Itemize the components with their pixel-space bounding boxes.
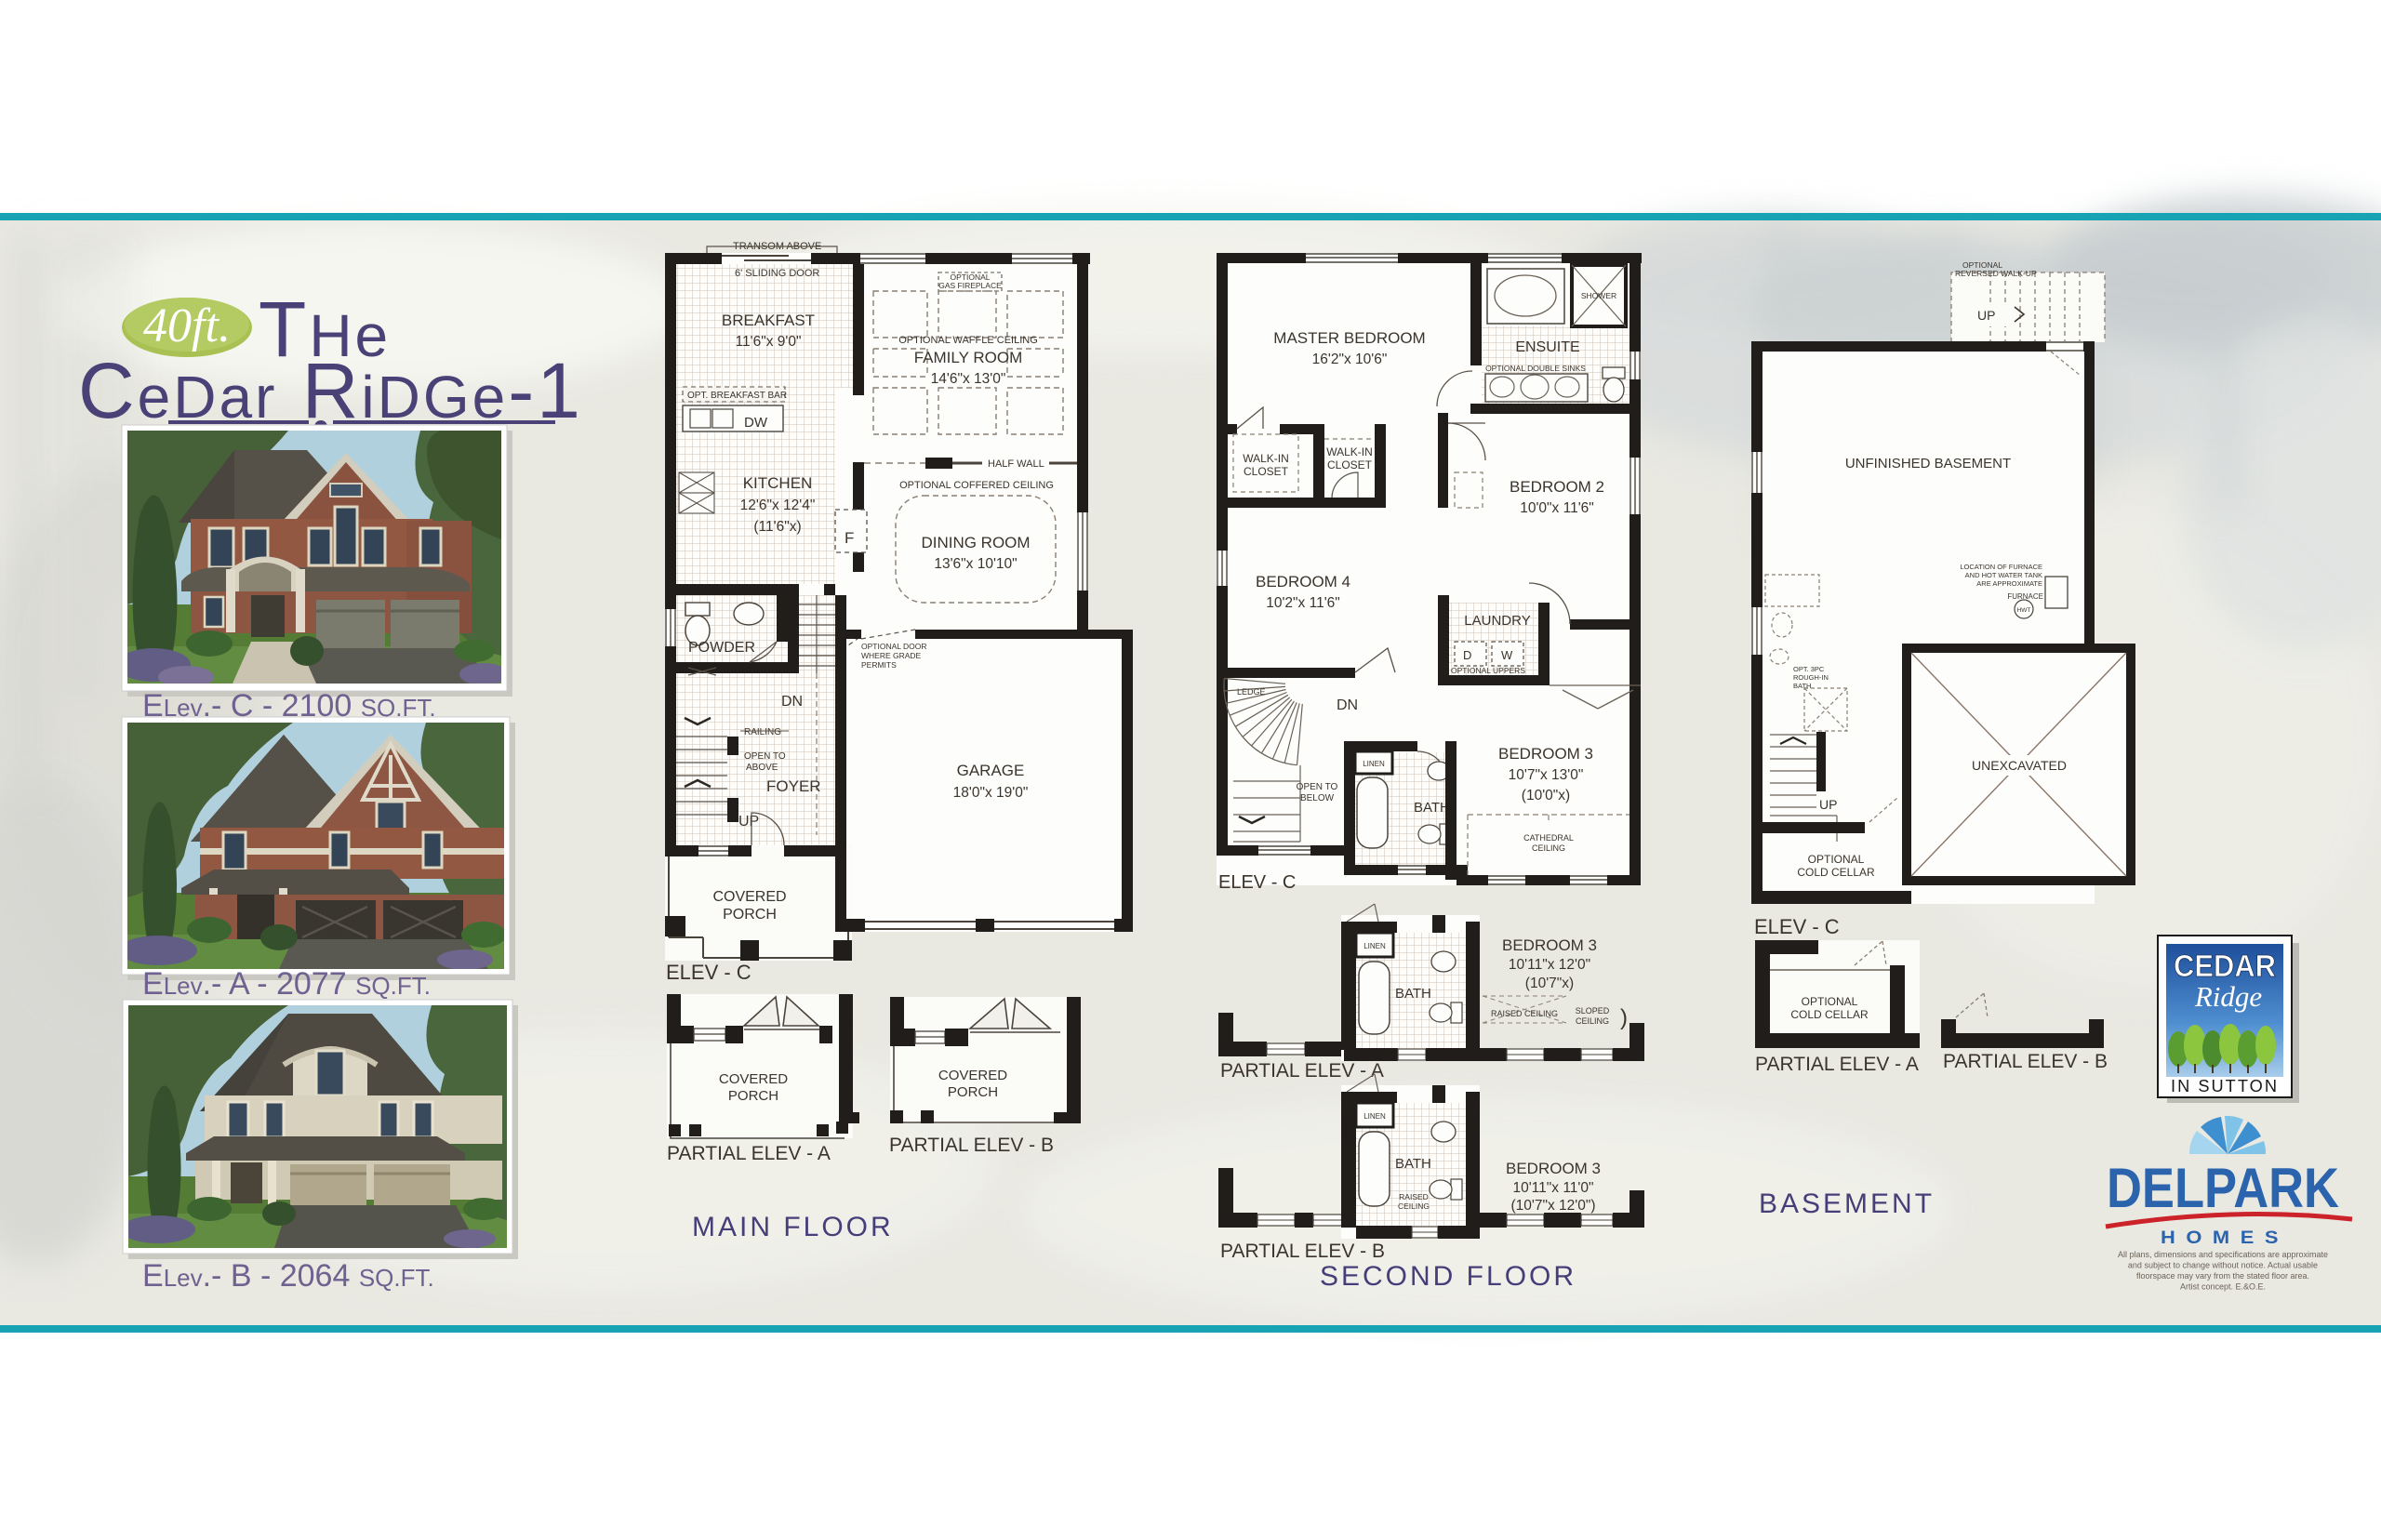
svg-text:PARTIAL ELEV - B: PARTIAL ELEV - B: [1220, 1241, 1385, 1262]
svg-text:LEDGE: LEDGE: [1237, 687, 1266, 697]
svg-text:RAISED CEILING: RAISED CEILING: [1491, 1009, 1558, 1018]
svg-text:SLOPED: SLOPED: [1576, 1006, 1610, 1016]
svg-text:18'0"x 19'0": 18'0"x 19'0": [953, 785, 1029, 801]
svg-text:ELev.- B - 2064 SQ.FT.: ELev.- B - 2064 SQ.FT.: [142, 1258, 434, 1294]
svg-text:PARTIAL ELEV - A: PARTIAL ELEV - A: [1220, 1060, 1384, 1082]
svg-text:Artist concept. E.&O.E.: Artist concept. E.&O.E.: [2180, 1282, 2266, 1292]
svg-text:DW: DW: [744, 415, 768, 431]
svg-text:14'6"x 13'0": 14'6"x 13'0": [931, 371, 1006, 387]
svg-text:10'11"x 11'0": 10'11"x 11'0": [1512, 1180, 1593, 1196]
svg-text:MASTER BEDROOM: MASTER BEDROOM: [1273, 329, 1425, 347]
svg-text:KITCHEN: KITCHEN: [743, 474, 813, 492]
svg-text:HALF WALL: HALF WALL: [988, 458, 1044, 470]
svg-text:10'7"x 13'0": 10'7"x 13'0": [1509, 767, 1584, 783]
svg-text:PORCH: PORCH: [948, 1084, 998, 1100]
svg-text:UP: UP: [738, 814, 759, 830]
svg-text:16'2"x 10'6": 16'2"x 10'6": [1312, 352, 1388, 367]
svg-text:OPTIONAL COFFERED CEILING: OPTIONAL COFFERED CEILING: [899, 480, 1054, 491]
svg-text:OPT. BREAKFAST BAR: OPT. BREAKFAST BAR: [687, 391, 787, 401]
svg-text:FOYER: FOYER: [766, 777, 821, 795]
svg-text:LINEN: LINEN: [1363, 942, 1386, 950]
svg-text:BEDROOM 2: BEDROOM 2: [1510, 478, 1604, 496]
svg-text:CEILING: CEILING: [1398, 1201, 1430, 1211]
svg-text:DELPARK: DELPARK: [2107, 1157, 2339, 1219]
svg-text:6' SLIDING DOOR: 6' SLIDING DOOR: [735, 268, 819, 279]
svg-text:HOMES: HOMES: [2161, 1228, 2289, 1248]
svg-text:(10'7"x 12'0"): (10'7"x 12'0"): [1510, 1198, 1595, 1214]
svg-text:WALK-IN: WALK-IN: [1243, 452, 1289, 465]
svg-text:BATH: BATH: [1395, 986, 1431, 1002]
svg-text:ELEV - C: ELEV - C: [1218, 872, 1296, 893]
svg-text:PARTIAL ELEV - A: PARTIAL ELEV - A: [667, 1143, 831, 1164]
svg-text:COLD CELLAR: COLD CELLAR: [1790, 1008, 1869, 1021]
svg-text:OPEN TO: OPEN TO: [744, 751, 786, 762]
svg-text:LOCATION OF FURNACE: LOCATION OF FURNACE: [1960, 563, 2042, 571]
svg-text:40ft.: 40ft.: [143, 299, 231, 352]
svg-text:UP: UP: [1819, 797, 1837, 812]
svg-text:COVERED: COVERED: [712, 889, 786, 905]
svg-text:BEDROOM 3: BEDROOM 3: [1498, 745, 1593, 763]
svg-text:Ridge: Ridge: [2194, 980, 2263, 1013]
svg-text:12'6"x 12'4": 12'6"x 12'4": [740, 498, 816, 513]
svg-text:D: D: [1463, 648, 1471, 662]
svg-text:PARTIAL ELEV - A: PARTIAL ELEV - A: [1755, 1054, 1919, 1075]
svg-text:SECOND FLOOR: SECOND FLOOR: [1320, 1261, 1576, 1292]
svg-text:ABOVE: ABOVE: [746, 763, 778, 773]
svg-text:CATHEDRAL: CATHEDRAL: [1523, 833, 1574, 843]
svg-text:and subject to change without: and subject to change without notice. Ac…: [2128, 1261, 2318, 1270]
svg-text:ENSUITE: ENSUITE: [1515, 339, 1579, 355]
svg-text:UP: UP: [1977, 308, 1995, 323]
svg-text:BATH: BATH: [1793, 682, 1811, 690]
svg-text:RAISED: RAISED: [1399, 1192, 1429, 1201]
svg-text:LINEN: LINEN: [1363, 760, 1385, 768]
svg-text:OPTIONAL DOUBLE SINKS: OPTIONAL DOUBLE SINKS: [1485, 364, 1586, 373]
svg-text:(10'7"x): (10'7"x): [1525, 976, 1574, 991]
svg-text:COLD CELLAR: COLD CELLAR: [1797, 866, 1875, 879]
svg-text:(10'0"x): (10'0"x): [1522, 788, 1570, 803]
svg-text:HWT: HWT: [2017, 607, 2031, 614]
svg-text:floorspace may vary from the s: floorspace may vary from the stated floo…: [2136, 1271, 2309, 1281]
svg-text:OPTIONAL DOOR: OPTIONAL DOOR: [861, 642, 927, 651]
svg-text:BEDROOM 3: BEDROOM 3: [1506, 1160, 1601, 1177]
svg-text:10'0"x 11'6": 10'0"x 11'6": [1520, 500, 1594, 516]
svg-text:OPEN TO: OPEN TO: [1297, 782, 1338, 792]
svg-text:ARE APPROXIMATE: ARE APPROXIMATE: [1976, 579, 2042, 588]
svg-text:CEILING: CEILING: [1576, 1016, 1609, 1026]
svg-text:BATH: BATH: [1414, 800, 1450, 816]
svg-text:DINING ROOM: DINING ROOM: [921, 534, 1030, 551]
svg-text:COVERED: COVERED: [938, 1068, 1007, 1083]
svg-text:OPTIONAL UPPERS: OPTIONAL UPPERS: [1451, 666, 1525, 675]
svg-text:ELEV - C: ELEV - C: [1754, 915, 1840, 938]
svg-text:DN: DN: [1337, 697, 1358, 713]
svg-text:WHERE GRADE: WHERE GRADE: [861, 651, 922, 660]
svg-text:OPTIONAL WAFFLE CEILING: OPTIONAL WAFFLE CEILING: [898, 335, 1038, 346]
svg-text:BREAKFAST: BREAKFAST: [722, 312, 815, 329]
svg-text:DN: DN: [781, 694, 803, 710]
svg-text:10'11"x 12'0": 10'11"x 12'0": [1509, 957, 1590, 973]
svg-text:BEDROOM 3: BEDROOM 3: [1502, 936, 1597, 954]
svg-text:MAIN FLOOR: MAIN FLOOR: [692, 1212, 894, 1242]
svg-text:AND HOT WATER TANK: AND HOT WATER TANK: [1965, 571, 2042, 579]
svg-text:PARTIAL ELEV - B: PARTIAL ELEV - B: [889, 1135, 1054, 1156]
svg-text:CEILING: CEILING: [1532, 843, 1565, 853]
svg-text:UNFINISHED BASEMENT: UNFINISHED BASEMENT: [1845, 456, 2011, 471]
svg-text:CEDAR: CEDAR: [2174, 949, 2276, 983]
svg-text:UNEXCAVATED: UNEXCAVATED: [1972, 758, 2067, 773]
svg-text:BELOW: BELOW: [1300, 793, 1335, 803]
svg-text:13'6"x 10'10": 13'6"x 10'10": [934, 556, 1017, 572]
svg-text:POWDER: POWDER: [688, 640, 755, 656]
svg-text:REVERSED WALK-UP: REVERSED WALK-UP: [1955, 269, 2037, 278]
svg-text:PARTIAL ELEV - B: PARTIAL ELEV - B: [1943, 1051, 2108, 1072]
svg-text:10'2"x 11'6": 10'2"x 11'6": [1266, 595, 1340, 611]
svg-text:11'6"x 9'0": 11'6"x 9'0": [736, 334, 802, 350]
svg-text:FAMILY ROOM: FAMILY ROOM: [914, 349, 1023, 366]
svg-text:PORCH: PORCH: [723, 907, 777, 923]
svg-text:BATH: BATH: [1395, 1156, 1431, 1172]
svg-text:LAUNDRY: LAUNDRY: [1464, 613, 1530, 629]
svg-text:F: F: [845, 529, 854, 547]
svg-text:WALK-IN: WALK-IN: [1326, 445, 1373, 458]
svg-text:ROUGH-IN: ROUGH-IN: [1793, 673, 1829, 682]
svg-text:BEDROOM 4: BEDROOM 4: [1256, 573, 1350, 591]
svg-text:): ): [1620, 1005, 1628, 1030]
svg-text:IN SUTTON: IN SUTTON: [2171, 1077, 2279, 1095]
svg-text:GARAGE: GARAGE: [957, 762, 1025, 779]
svg-text:LINEN: LINEN: [1363, 1112, 1386, 1121]
svg-text:OPTIONAL: OPTIONAL: [1802, 995, 1858, 1008]
svg-text:ELev.- A - 2077 SQ.FT.: ELev.- A - 2077 SQ.FT.: [142, 966, 431, 1002]
svg-text:CLOSET: CLOSET: [1244, 465, 1289, 478]
svg-text:PORCH: PORCH: [728, 1088, 778, 1104]
svg-text:CLOSET: CLOSET: [1327, 458, 1373, 471]
svg-text:PERMITS: PERMITS: [861, 660, 897, 670]
svg-text:OPT. 3PC: OPT. 3PC: [1793, 665, 1825, 673]
svg-text:All plans, dimensions and spec: All plans, dimensions and specifications…: [2118, 1250, 2328, 1259]
svg-text:ELEV - C: ELEV - C: [666, 961, 752, 984]
svg-text:(11'6"x): (11'6"x): [753, 519, 801, 535]
svg-text:SHOWER: SHOWER: [1581, 291, 1616, 300]
svg-text:GAS FIREPLACE: GAS FIREPLACE: [938, 281, 1002, 290]
svg-text:RAILING: RAILING: [744, 727, 781, 737]
svg-text:W: W: [1501, 648, 1513, 662]
svg-text:OPTIONAL: OPTIONAL: [1808, 853, 1865, 866]
svg-text:BASEMENT: BASEMENT: [1759, 1188, 1935, 1219]
svg-text:COVERED: COVERED: [719, 1071, 788, 1087]
